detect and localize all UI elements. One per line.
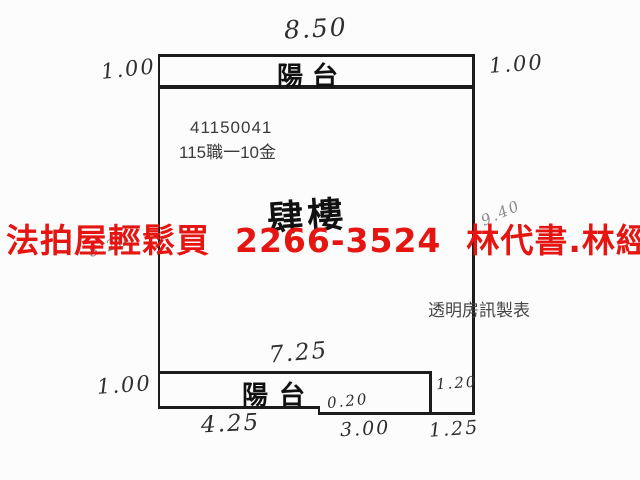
dim-step-depth: 0.20 bbox=[326, 390, 369, 412]
dim-bottom-balcony-width: 7.25 bbox=[268, 337, 329, 368]
top-balcony-label: 陽台 bbox=[277, 56, 347, 93]
dim-bottom-left-depth: 1.00 bbox=[96, 371, 152, 399]
bottom-balcony-label: 陽台 bbox=[242, 375, 316, 412]
dim-top-left-depth: 1.00 bbox=[100, 54, 157, 84]
wall-bottom-right-segment bbox=[318, 412, 475, 415]
ad-overlay-text: 法拍屋輕鬆買 2266-3524 林代書.林經理 bbox=[6, 214, 640, 262]
dim-bottom-seg-left: 4.25 bbox=[200, 409, 260, 438]
wall-bottom-balcony-top bbox=[158, 371, 432, 374]
wall-bottom-balcony-right bbox=[429, 371, 432, 415]
floorplan-scan: 8.50 1.00 1.00 8.20 9.40 7.25 1.00 0.20 … bbox=[0, 0, 640, 480]
dim-bottom-seg-mid: 3.00 bbox=[339, 417, 390, 442]
dim-bottom-seg-right: 1.25 bbox=[428, 416, 480, 441]
dim-top-width: 8.50 bbox=[283, 12, 348, 44]
property-id: 41150041 bbox=[190, 118, 272, 138]
case-number: 115職一10金 bbox=[179, 138, 276, 163]
dim-top-right-depth: 1.00 bbox=[488, 50, 544, 78]
publisher-credit: 透明房訊製表 bbox=[428, 296, 530, 321]
dim-notch-height: 1.20 bbox=[435, 373, 478, 394]
